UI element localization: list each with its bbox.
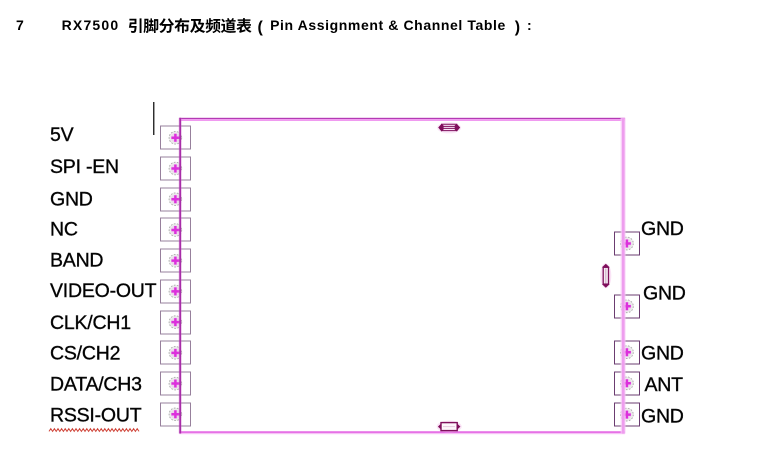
svg-text:VIDEO-OUT: VIDEO-OUT (50, 280, 157, 302)
svg-text::: : (527, 17, 532, 33)
svg-text:CLK/CH1: CLK/CH1 (50, 312, 131, 334)
svg-text:GND: GND (641, 406, 684, 428)
svg-text:NC: NC (50, 218, 78, 240)
svg-text:ANT: ANT (645, 374, 684, 396)
svg-text:5V: 5V (50, 124, 74, 146)
svg-text:GND: GND (641, 218, 684, 240)
svg-text:SPI -EN: SPI -EN (50, 156, 119, 178)
svg-text:CS/CH2: CS/CH2 (50, 343, 120, 365)
svg-text:GND: GND (641, 343, 684, 365)
svg-text:GND: GND (50, 188, 93, 210)
svg-text:GND: GND (643, 283, 686, 305)
svg-text:RX7500: RX7500 (62, 17, 120, 33)
svg-text:7: 7 (16, 17, 24, 33)
svg-text:DATA/CH3: DATA/CH3 (50, 373, 142, 395)
svg-text:RSSI-OUT: RSSI-OUT (50, 405, 142, 427)
svg-text:(: ( (258, 19, 264, 36)
svg-text:Pin Assignment & Channel Table: Pin Assignment & Channel Table (270, 17, 506, 33)
svg-text:): ) (515, 19, 520, 36)
svg-text:BAND: BAND (50, 250, 103, 272)
